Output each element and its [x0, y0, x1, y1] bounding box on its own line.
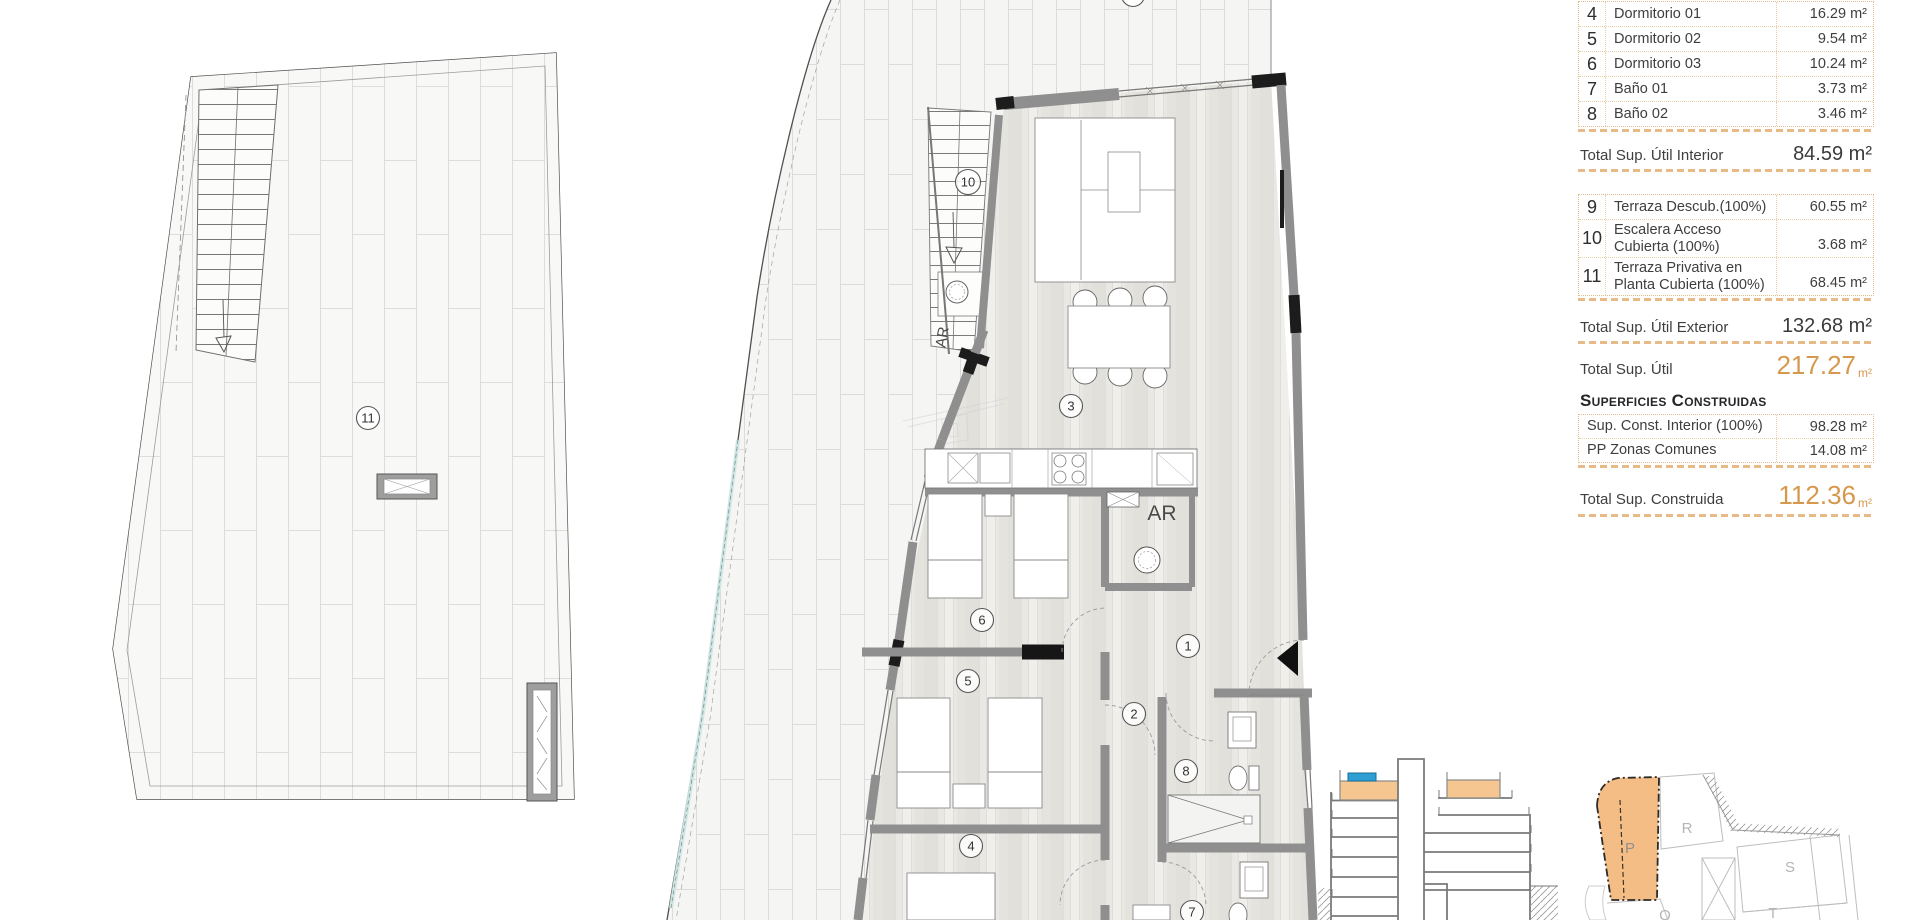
section-highlight-left	[1340, 781, 1398, 800]
room-label-terrace-11: 11	[357, 407, 380, 430]
section-diagram	[1318, 759, 1558, 920]
row-value: 68.45 m²	[1776, 258, 1873, 295]
table-row: 5 Dormitorio 02 9.54 m²	[1579, 26, 1873, 51]
row-number: 7	[1579, 77, 1606, 101]
table-row: 4 Dormitorio 01 16.29 m²	[1579, 2, 1873, 26]
row-value: 3.46 m²	[1776, 102, 1873, 126]
svg-text:1: 1	[1184, 639, 1191, 654]
room-label-living-3: 3	[1060, 395, 1083, 418]
dashed-rule	[1578, 465, 1874, 468]
interior-areas-table: 4 Dormitorio 01 16.29 m² 5 Dormitorio 02…	[1578, 1, 1874, 127]
svg-text:3: 3	[1067, 399, 1074, 414]
total-value-orange: 112.36m²	[1778, 480, 1872, 511]
svg-text:5: 5	[964, 674, 971, 689]
tv-icon	[1280, 170, 1284, 228]
row-number: 5	[1579, 27, 1606, 51]
site-label-t: T	[1768, 905, 1777, 920]
section-blue-marker	[1348, 773, 1376, 781]
total-value-orange: 217.27m²	[1776, 350, 1872, 381]
dining-set-icon	[1068, 286, 1170, 388]
site-label-p: P	[1625, 840, 1635, 857]
constructed-areas-table: Sup. Const. Interior (100%) 98.28 m² PP …	[1578, 414, 1874, 463]
roof-plan	[113, 53, 574, 801]
row-value: 10.24 m²	[1776, 52, 1873, 76]
room-label-corridor-2: 2	[1123, 703, 1146, 726]
room-label-bath-8: 8	[1175, 760, 1198, 783]
table-row: 7 Baño 01 3.73 m²	[1579, 76, 1873, 101]
svg-text:4: 4	[967, 839, 974, 854]
table-row: Sup. Const. Interior (100%) 98.28 m²	[1579, 415, 1873, 438]
site-unit-p-highlight	[1597, 777, 1659, 900]
area-tables-panel: 4 Dormitorio 01 16.29 m² 5 Dormitorio 02…	[1578, 0, 1874, 517]
roof-skylight-icon	[377, 474, 437, 499]
room-label-hall-1: 1	[1177, 635, 1200, 658]
row-label: Dormitorio 01	[1606, 2, 1776, 26]
room-label-stair-10: 10	[956, 170, 981, 195]
row-value: 3.73 m²	[1776, 77, 1873, 101]
section-highlight-right	[1447, 780, 1500, 798]
row-label: Dormitorio 02	[1606, 27, 1776, 51]
row-number: 9	[1579, 195, 1606, 219]
total-label: Total Sup. Útil Exterior	[1580, 319, 1728, 336]
sofa-icon	[1035, 118, 1175, 282]
exterior-areas-table: 9 Terraza Descub.(100%) 60.55 m² 10 Esca…	[1578, 194, 1874, 296]
table-row: 9 Terraza Descub.(100%) 60.55 m²	[1579, 195, 1873, 219]
row-number: 10	[1579, 220, 1606, 257]
dashed-rule	[1578, 169, 1874, 172]
room-label-bedroom-4: 4	[960, 835, 983, 858]
row-label: Escalera AccesoCubierta (100%)	[1606, 220, 1776, 257]
svg-text:8: 8	[1182, 764, 1189, 779]
row-number: 11	[1579, 258, 1606, 295]
plan-sheet: 11 10 3 6 5 4 1 2 8 7 AR AR	[0, 0, 1920, 920]
dashed-rule	[1578, 298, 1874, 301]
total-label: Total Sup. Construida	[1580, 491, 1723, 508]
constructed-surfaces-header: Superficies Construidas	[1578, 391, 1874, 411]
table-row: 10 Escalera AccesoCubierta (100%) 3.68 m…	[1579, 219, 1873, 257]
table-row: PP Zonas Comunes 14.08 m²	[1579, 438, 1873, 462]
ar-label-stair: AR	[932, 325, 952, 349]
svg-text:7: 7	[1188, 905, 1195, 920]
row-value: 98.28 m²	[1776, 415, 1873, 438]
total-value: 84.59 m²	[1793, 143, 1872, 166]
svg-text:2: 2	[1130, 707, 1137, 722]
row-number: 4	[1579, 2, 1606, 26]
row-value: 14.08 m²	[1776, 439, 1873, 462]
total-exterior-line: Total Sup. Útil Exterior 132.68 m²	[1578, 315, 1874, 338]
row-value: 16.29 m²	[1776, 2, 1873, 26]
total-label: Total Sup. Útil Interior	[1580, 147, 1723, 164]
row-label: Baño 01	[1606, 77, 1776, 101]
dashed-rule	[1578, 129, 1874, 132]
row-label: PP Zonas Comunes	[1579, 439, 1776, 462]
row-value: 3.68 m²	[1776, 220, 1873, 257]
row-value: 9.54 m²	[1776, 27, 1873, 51]
total-constructed-line: Total Sup. Construida 112.36m²	[1578, 480, 1874, 511]
svg-text:11: 11	[361, 411, 375, 426]
svg-text:10: 10	[961, 175, 975, 190]
total-label: Total Sup. Útil	[1580, 361, 1673, 378]
row-number: 6	[1579, 52, 1606, 76]
table-row: 6 Dormitorio 03 10.24 m²	[1579, 51, 1873, 76]
row-value: 60.55 m²	[1776, 195, 1873, 219]
room-label-bedroom-6: 6	[971, 609, 994, 632]
room-label-bath-7: 7	[1181, 901, 1204, 920]
total-interior-line: Total Sup. Útil Interior 84.59 m²	[1578, 143, 1874, 166]
row-label: Terraza Descub.(100%)	[1606, 195, 1776, 219]
total-value: 132.68 m²	[1782, 315, 1872, 338]
site-label-r: R	[1682, 820, 1693, 837]
row-label: Dormitorio 03	[1606, 52, 1776, 76]
site-label-q: Q	[1659, 907, 1671, 920]
room-label-bedroom-5: 5	[957, 670, 980, 693]
row-number: 8	[1579, 102, 1606, 126]
kitchen-counter-icon	[925, 449, 1197, 488]
dashed-rule	[1578, 514, 1874, 517]
site-label-s: S	[1785, 859, 1795, 876]
table-row: 11 Terraza Privativa enPlanta Cubierta (…	[1579, 257, 1873, 295]
row-label: Sup. Const. Interior (100%)	[1579, 415, 1776, 438]
total-util-line: Total Sup. Útil 217.27m²	[1578, 350, 1874, 381]
ar-label: AR	[1147, 502, 1176, 525]
dashed-rule	[1578, 341, 1874, 344]
roof-vent-icon	[527, 683, 557, 801]
site-plan: P R S T Q	[1585, 773, 1858, 920]
row-label: Baño 02	[1606, 102, 1776, 126]
table-row: 8 Baño 02 3.46 m²	[1579, 101, 1873, 126]
row-label: Terraza Privativa enPlanta Cubierta (100…	[1606, 258, 1776, 295]
svg-text:6: 6	[978, 613, 985, 628]
